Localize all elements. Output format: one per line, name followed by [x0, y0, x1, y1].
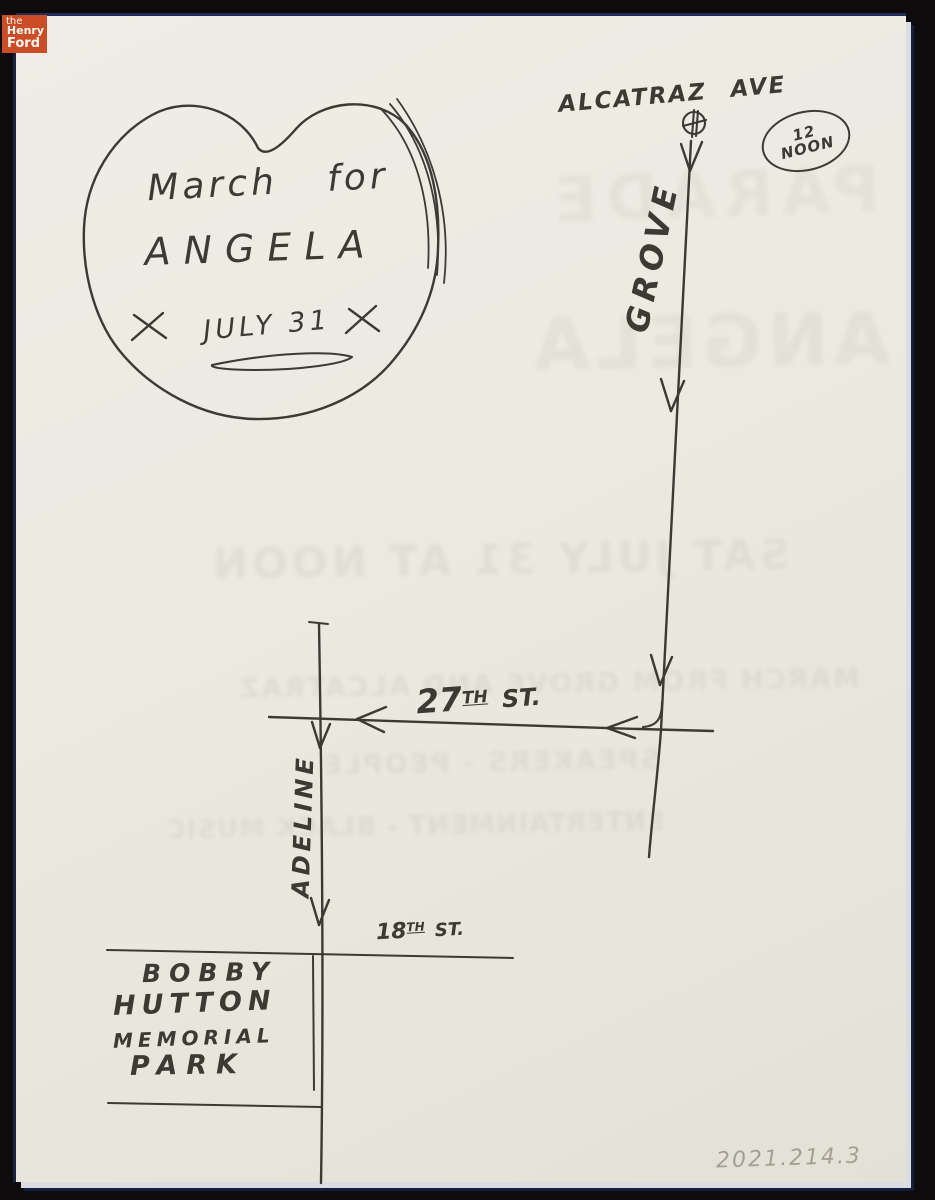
bleed-through-text: SPEAKERS - PEOPLE — [330, 744, 660, 781]
street18-ordinal: TH — [406, 919, 425, 934]
park-label-line4: PARK — [130, 1049, 246, 1082]
scanned-archive-photo: { "archive": { "logo": { "word_the": "th… — [0, 0, 935, 1200]
street18-word: ST. — [434, 919, 464, 941]
bleed-through-text: SAT JULY 31 AT NOON — [290, 530, 791, 588]
street27-ordinal: TH — [461, 687, 488, 709]
bleed-through-text: ANGELA — [489, 297, 890, 388]
noon-line2: NOON — [779, 134, 836, 162]
accession-number: 2021.214.3 — [716, 1143, 863, 1173]
street27-word: ST. — [501, 683, 542, 714]
park-label-line2: HUTTON — [113, 985, 278, 1022]
street27-number: 27 — [415, 679, 464, 721]
logo-word-ford: Ford — [7, 36, 40, 51]
park-label-line1: BOBBY — [142, 957, 278, 988]
street18-number: 18 — [375, 919, 407, 946]
street18-label: 18THST. — [375, 916, 464, 946]
henry-ford-logo: the Henry Ford — [2, 15, 47, 53]
